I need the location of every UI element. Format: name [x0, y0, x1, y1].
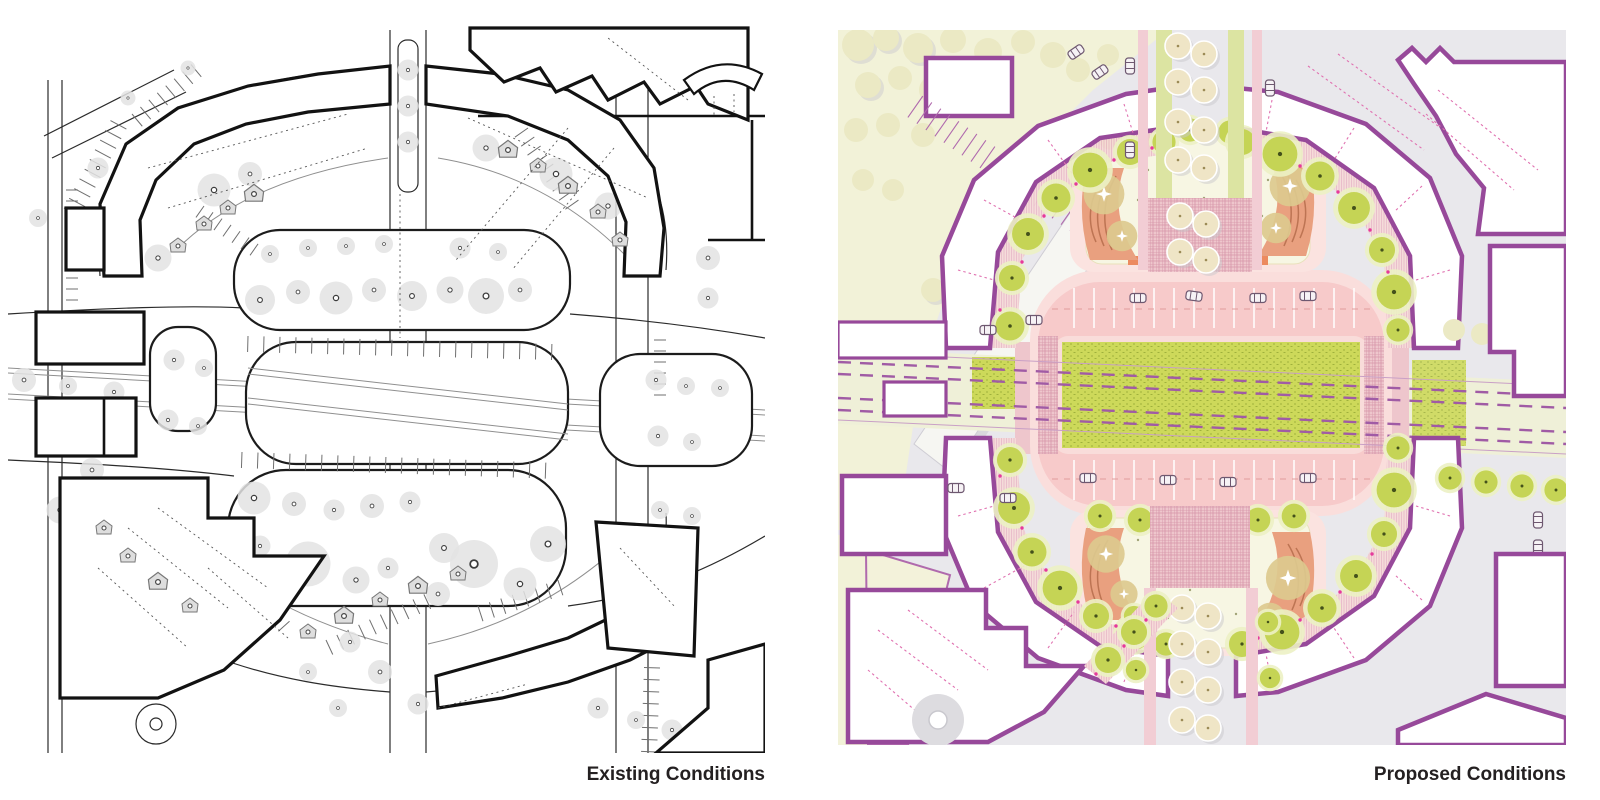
existing-conditions-label: Existing Conditions [587, 764, 765, 786]
proposed-conditions-panel: Proposed Conditions [838, 0, 1566, 794]
central-plaza-complex [1030, 270, 1392, 516]
proposed-conditions-label: Proposed Conditions [1374, 764, 1566, 786]
site-plan-comparison: Existing Conditions [0, 0, 1600, 800]
existing-conditions-drawing [8, 8, 765, 753]
park-building [926, 58, 1012, 116]
proposed-conditions-drawing [838, 30, 1566, 745]
existing-conditions-panel: Existing Conditions [8, 8, 765, 794]
